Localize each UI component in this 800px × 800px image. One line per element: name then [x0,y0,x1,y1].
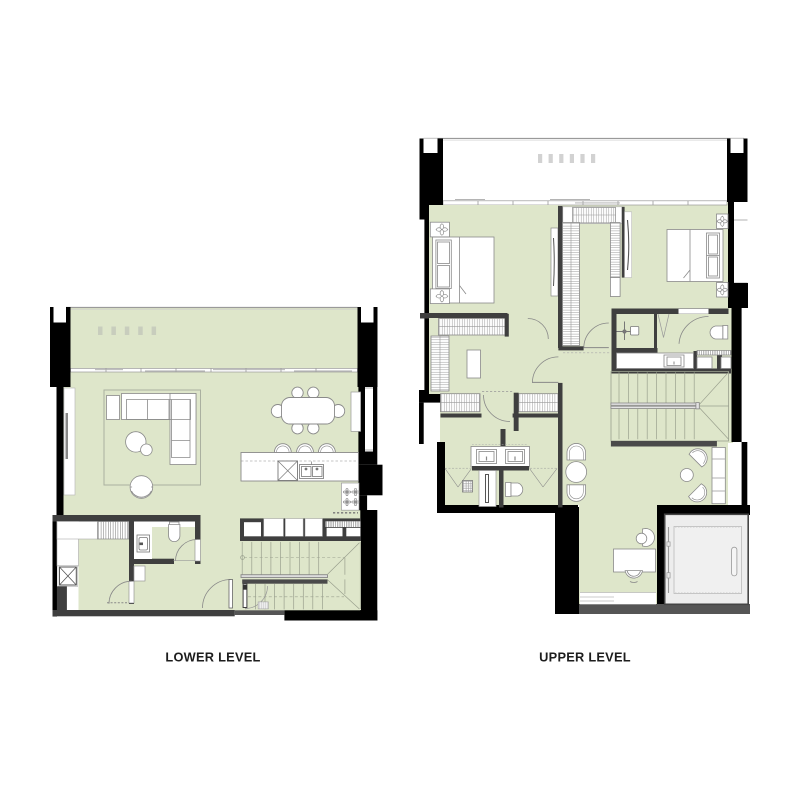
svg-text:LOWER LEVEL: LOWER LEVEL [165,650,260,665]
svg-text:UPPER LEVEL: UPPER LEVEL [539,650,631,665]
